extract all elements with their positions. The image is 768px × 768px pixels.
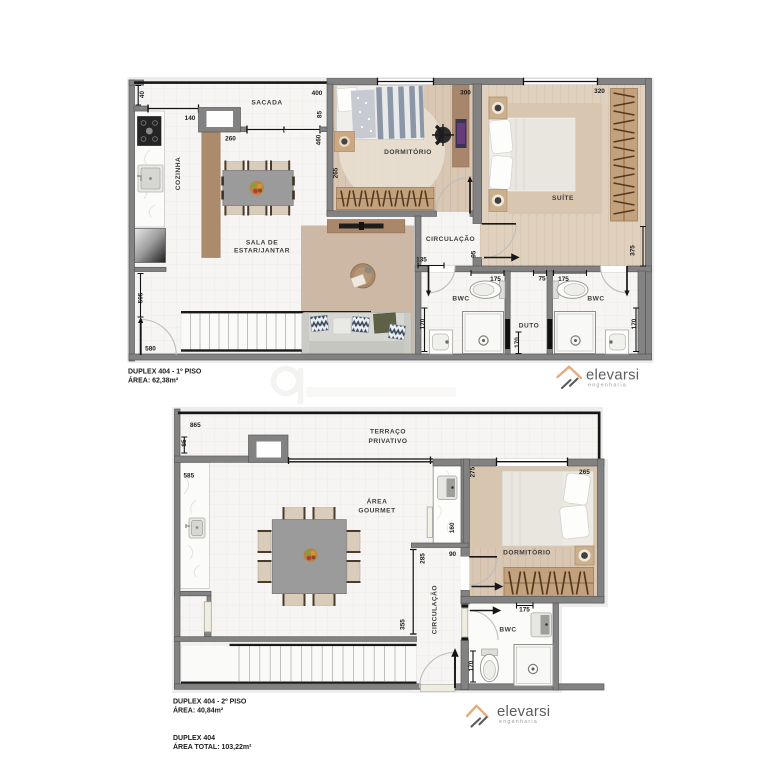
svg-text:engenharia: engenharia — [588, 383, 627, 389]
svg-text:95: 95 — [471, 250, 478, 258]
svg-text:85: 85 — [317, 111, 324, 119]
svg-text:85: 85 — [181, 439, 188, 447]
svg-text:SACADA: SACADA — [251, 100, 282, 107]
svg-text:135: 135 — [416, 257, 427, 264]
svg-text:140: 140 — [185, 115, 196, 122]
svg-text:320: 320 — [594, 88, 605, 95]
svg-text:ÁREA TOTAL: 103,22m²: ÁREA TOTAL: 103,22m² — [173, 742, 252, 751]
svg-text:275: 275 — [470, 466, 477, 477]
svg-text:PRIVATIVO: PRIVATIVO — [368, 438, 407, 445]
svg-text:580: 580 — [145, 346, 156, 353]
svg-text:DUPLEX 404 - 2º PISO: DUPLEX 404 - 2º PISO — [173, 699, 247, 706]
svg-text:ÁREA: ÁREA — [367, 497, 388, 506]
svg-text:170: 170 — [419, 318, 426, 329]
svg-text:175: 175 — [519, 607, 530, 614]
svg-text:DUTO: DUTO — [519, 323, 540, 330]
svg-text:265: 265 — [579, 469, 590, 476]
svg-text:SUÍTE: SUÍTE — [552, 193, 574, 202]
svg-text:COZINHA: COZINHA — [175, 157, 182, 191]
svg-text:GOURMET: GOURMET — [358, 508, 395, 515]
svg-text:505: 505 — [138, 292, 145, 303]
svg-text:40: 40 — [139, 91, 146, 99]
svg-text:SALA DE: SALA DE — [246, 240, 278, 247]
svg-text:DORMITÓRIO: DORMITÓRIO — [503, 548, 551, 557]
svg-text:170: 170 — [631, 318, 638, 329]
svg-text:400: 400 — [312, 90, 323, 97]
svg-text:160: 160 — [449, 522, 456, 533]
svg-text:ÁREA: 62,38m²: ÁREA: 62,38m² — [128, 376, 179, 385]
svg-text:ESTAR/JANTAR: ESTAR/JANTAR — [234, 248, 290, 255]
svg-text:170: 170 — [468, 660, 475, 671]
svg-text:375: 375 — [630, 245, 637, 256]
svg-text:170: 170 — [514, 337, 521, 348]
svg-text:460: 460 — [316, 134, 323, 145]
svg-text:90: 90 — [449, 551, 457, 558]
svg-text:175: 175 — [558, 276, 569, 283]
svg-text:elevarsi: elevarsi — [497, 704, 550, 720]
svg-text:engenharia: engenharia — [499, 719, 538, 725]
svg-text:BWC: BWC — [587, 296, 604, 303]
svg-text:TERRAÇO: TERRAÇO — [370, 429, 406, 436]
svg-text:DORMITÓRIO: DORMITÓRIO — [384, 147, 432, 156]
svg-text:285: 285 — [419, 553, 426, 564]
svg-text:CIRCULAÇÃO: CIRCULAÇÃO — [426, 234, 475, 243]
svg-text:585: 585 — [184, 473, 195, 480]
svg-text:DUPLEX 404: DUPLEX 404 — [173, 735, 215, 742]
svg-text:75: 75 — [538, 275, 546, 282]
svg-text:BWC: BWC — [452, 296, 469, 303]
svg-text:BWC: BWC — [499, 627, 516, 634]
svg-text:175: 175 — [490, 276, 501, 283]
svg-text:ÁREA: 40,84m²: ÁREA: 40,84m² — [173, 706, 224, 715]
svg-text:265: 265 — [333, 167, 340, 178]
svg-text:865: 865 — [190, 422, 201, 429]
svg-text:260: 260 — [225, 136, 236, 143]
svg-text:355: 355 — [400, 619, 407, 630]
svg-text:CIRCULAÇÃO: CIRCULAÇÃO — [430, 585, 439, 634]
svg-text:elevarsi: elevarsi — [586, 368, 639, 384]
svg-text:300: 300 — [460, 90, 471, 97]
svg-text:DUPLEX 404 - 1º PISO: DUPLEX 404 - 1º PISO — [128, 369, 202, 376]
